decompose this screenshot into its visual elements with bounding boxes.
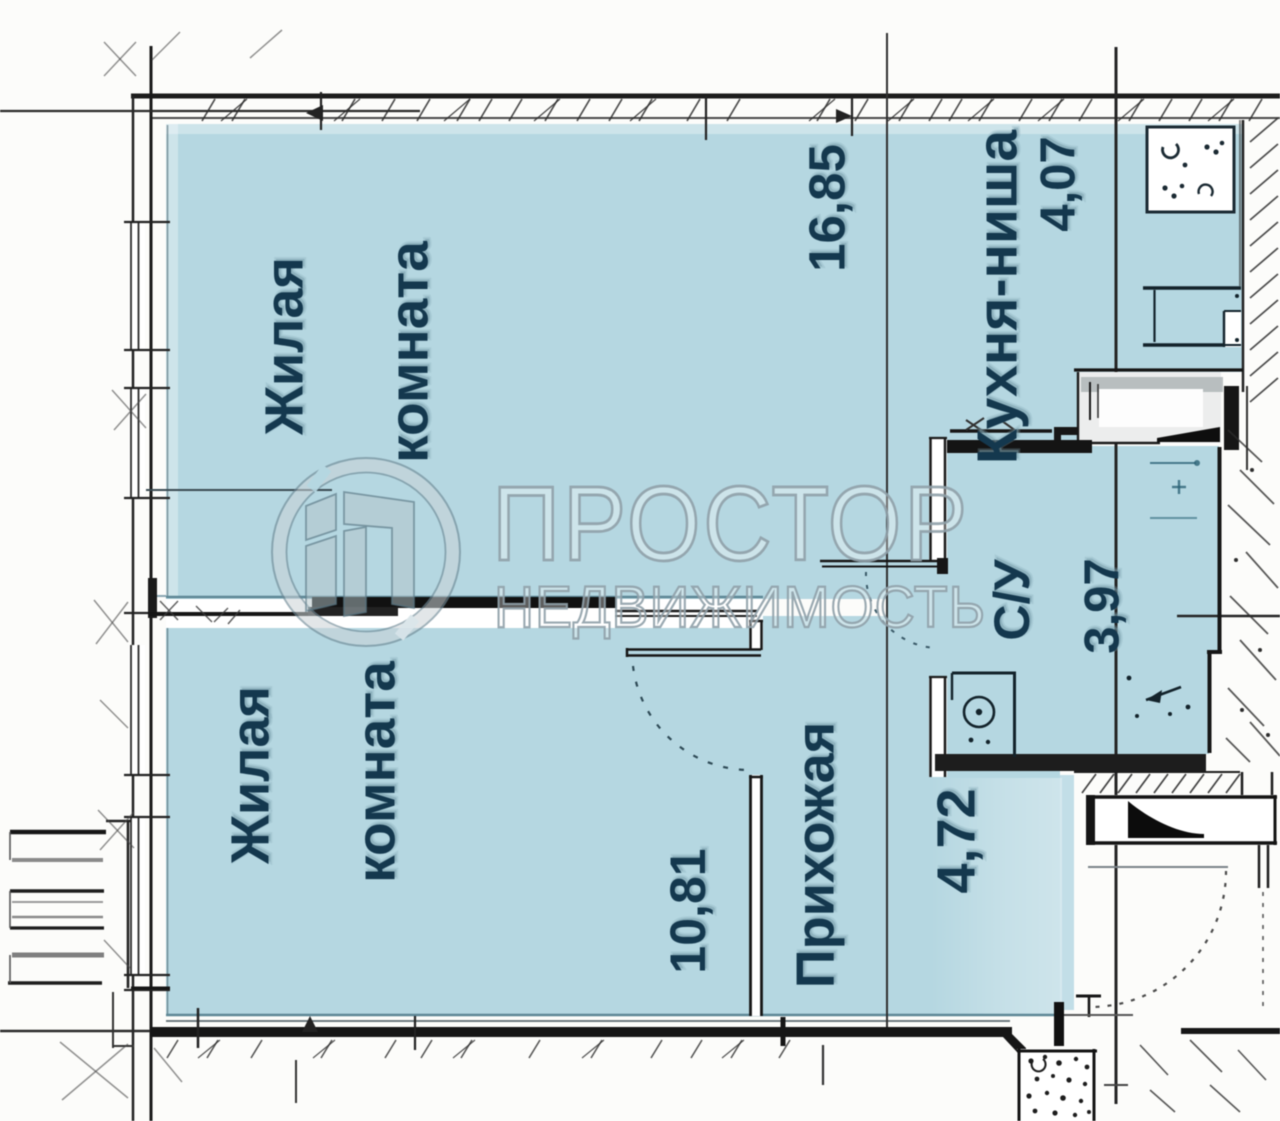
svg-text:Жилая: Жилая bbox=[220, 686, 280, 865]
svg-text:4,72: 4,72 bbox=[926, 788, 986, 893]
svg-text:4,07: 4,07 bbox=[1032, 136, 1086, 231]
svg-text:комната: комната bbox=[378, 241, 440, 463]
svg-text:16,85: 16,85 bbox=[798, 144, 855, 272]
svg-text:Прихожая: Прихожая bbox=[785, 722, 845, 988]
svg-text:комната: комната bbox=[345, 661, 407, 883]
svg-text:ПРОСТОР: ПРОСТОР bbox=[492, 465, 970, 583]
svg-text:НЕДВИЖИМОСТЬ: НЕДВИЖИМОСТЬ bbox=[494, 575, 986, 640]
svg-text:Жилая: Жилая bbox=[254, 257, 314, 436]
svg-text:10,81: 10,81 bbox=[660, 848, 716, 973]
svg-text:3,97: 3,97 bbox=[1076, 558, 1130, 653]
svg-text:С/У: С/У bbox=[984, 559, 1040, 641]
svg-text:Кухня-ниша: Кухня-ниша bbox=[965, 129, 1029, 465]
